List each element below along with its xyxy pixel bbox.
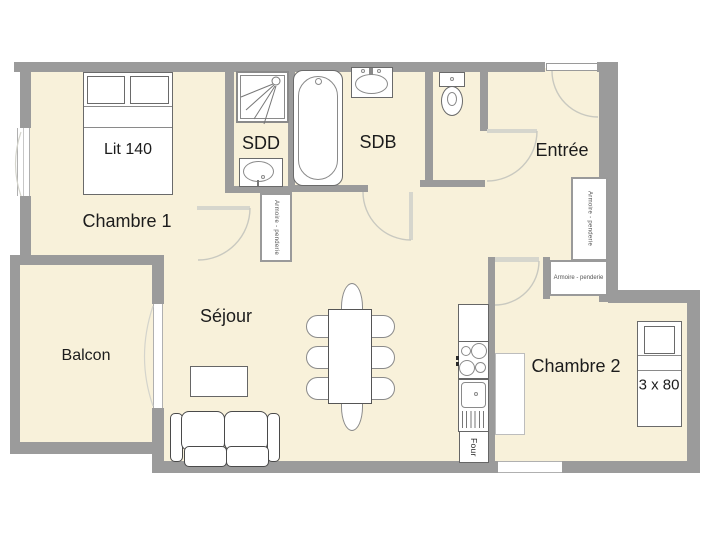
pillow — [644, 326, 675, 354]
sdb-faucet-handle — [361, 69, 365, 73]
sdb-faucet-handle — [377, 69, 381, 73]
wall-balcon-bottom — [10, 442, 164, 454]
dining-chair — [306, 315, 330, 338]
bathtub-drain — [315, 78, 322, 85]
wc-door-leaf — [487, 129, 537, 133]
wardrobe-label: Armoire - penderie — [273, 200, 279, 255]
room-label-sdb: SDB — [359, 133, 396, 151]
oven-label: Four — [469, 438, 479, 457]
hob-burner — [475, 362, 486, 373]
kitchen-drainboard — [462, 411, 486, 428]
coffee-table — [190, 366, 248, 397]
wall-sdb-bottom — [288, 185, 368, 192]
dining-chair — [371, 346, 395, 369]
wall-balcon-right-upper — [152, 258, 164, 304]
entrance-door-leaf — [546, 63, 598, 71]
oven: Four — [459, 431, 489, 463]
room-label-chambre1: Chambre 1 — [82, 212, 171, 230]
room-label-entree: Entrée — [535, 141, 588, 159]
hob-burner — [461, 346, 471, 356]
sofa-seat-cushion — [226, 446, 269, 467]
wall-balcon-right-lower — [152, 408, 164, 464]
bed-fold-line — [84, 106, 172, 107]
wall-wc-bottom — [420, 180, 485, 187]
sdb-sink-faucet — [369, 68, 373, 75]
room-label-sejour: Séjour — [200, 307, 252, 325]
wall-chambre1-bottom — [10, 255, 164, 265]
dining-chair — [306, 346, 330, 369]
dining-chair — [306, 377, 330, 400]
bed2-label: 3 x 80 — [639, 378, 680, 393]
dining-chair — [371, 315, 395, 338]
sdd-sink-basin — [243, 161, 274, 182]
wall-bottom-east — [562, 461, 700, 473]
room-label-chambre2: Chambre 2 — [531, 357, 620, 375]
chambre1-door-leaf — [197, 206, 250, 210]
bed-fold-line — [638, 355, 681, 356]
sdb-door-leaf — [409, 192, 413, 240]
room-label-sdd: SDD — [242, 134, 280, 152]
kitchen-sink-drain — [474, 392, 478, 396]
dining-chair — [371, 377, 395, 400]
hob-burner — [459, 360, 475, 376]
wall-chambre2-right — [687, 290, 700, 473]
wall-balcon-left — [10, 255, 20, 454]
chambre2-door-leaf — [495, 257, 539, 262]
window-chambre2-bottom — [498, 461, 562, 473]
sdd-sink-faucet — [257, 180, 259, 186]
wardrobe-sdd: Armoire - penderie — [260, 193, 292, 262]
wall-sdd-bottom — [233, 186, 292, 193]
wall-wc-right — [480, 62, 488, 131]
wall-chambre1-right — [225, 62, 234, 193]
wardrobe-chambre2: Armoire - penderie — [549, 260, 608, 296]
bed-fold-line — [638, 370, 681, 371]
dining-table — [328, 309, 372, 404]
sofa-back-cushion — [181, 411, 225, 451]
wardrobe-label: Armoire - penderie — [554, 275, 604, 281]
wall-sdb-wc — [425, 62, 433, 185]
room-label-balcon: Balcon — [62, 348, 111, 364]
wall-sejour-chambre2 — [488, 257, 495, 473]
pillow — [130, 76, 169, 104]
bed1-label: Lit 140 — [104, 142, 152, 158]
sdd-sink-drain — [261, 175, 265, 179]
hob-knob — [456, 362, 459, 366]
window-balcon-door — [153, 304, 163, 408]
wardrobe-label: Armoire - penderie — [587, 191, 593, 246]
wall-left-upper — [20, 62, 31, 128]
floor-plan: Armoire - penderie Armoire - penderie Ar… — [0, 0, 710, 533]
wardrobe-entree: Armoire - penderie — [571, 177, 608, 261]
bed-fold-line — [84, 127, 172, 128]
toilet-button — [450, 77, 454, 81]
wall-left-lower — [20, 196, 31, 258]
pillow — [87, 76, 125, 104]
hob-knob — [456, 356, 459, 360]
shower-stall-inner — [240, 75, 285, 119]
hob-burner — [471, 343, 487, 359]
bathtub-inner — [298, 76, 338, 180]
kitchen-counter — [458, 304, 489, 342]
toilet-bowl-inner — [447, 92, 457, 106]
chambre2-panel — [495, 353, 525, 435]
sofa-seat-cushion — [184, 446, 227, 467]
sofa-back-cushion — [224, 411, 268, 451]
sdb-sink-basin — [355, 74, 388, 94]
window-chambre1 — [17, 128, 30, 196]
